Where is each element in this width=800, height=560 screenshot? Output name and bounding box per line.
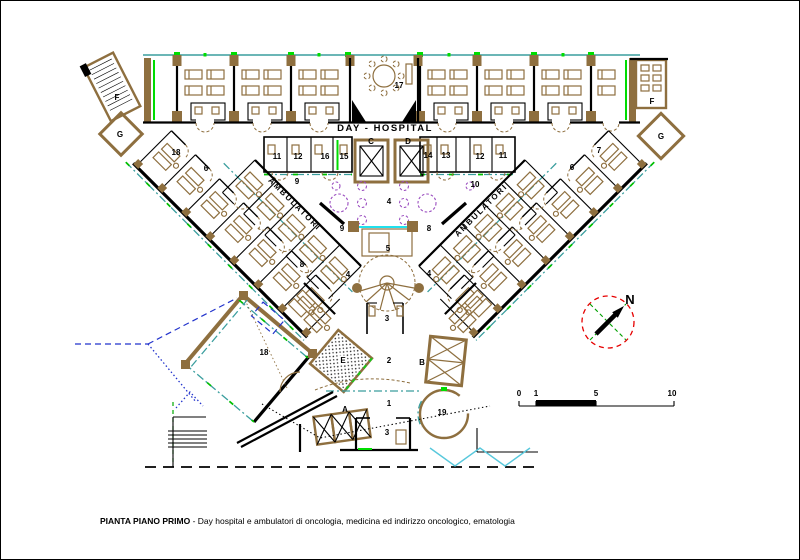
room-label-18-square: 18 <box>260 348 269 357</box>
room-label-14: 14 <box>424 151 433 160</box>
scale-bar-block <box>536 400 596 406</box>
room-label-4-lower-right: 4 <box>427 269 432 278</box>
room-label-e: E <box>340 356 346 365</box>
room-label-7: 7 <box>597 146 602 155</box>
floor-plan-page: N 0 1 5 10 DAY - HOSPITAL AMBULATORI AMB… <box>0 0 800 560</box>
drawing-title-rest: - Day hospital e ambulatori di oncologia… <box>190 516 515 526</box>
room-label-f-right: F <box>650 97 655 106</box>
room-label-g-right: G <box>658 132 664 141</box>
scale-tick-0: 0 <box>517 389 522 398</box>
elevator-c <box>355 140 388 182</box>
room-label-16: 16 <box>321 152 330 161</box>
room-label-4-atrium: 4 <box>387 197 392 206</box>
room-label-3-upper: 3 <box>385 314 390 323</box>
room-label-10: 10 <box>471 180 480 189</box>
day-hospital-label: DAY - HOSPITAL <box>337 123 433 134</box>
room-label-17: 17 <box>395 81 404 90</box>
left-end-wall <box>144 58 151 122</box>
north-label: N <box>625 292 634 307</box>
room-label-3-lower: 3 <box>385 428 390 437</box>
room-label-a: A <box>342 405 348 414</box>
room-label-b: B <box>419 358 425 367</box>
room-label-6-left: 6 <box>204 164 209 173</box>
room-label-5: 5 <box>386 244 391 253</box>
room-label-d: D <box>405 137 411 146</box>
scale-tick-10: 10 <box>668 389 677 398</box>
room-label-11-left: 11 <box>273 152 282 161</box>
room-label-18-strip: 18 <box>172 148 181 157</box>
elevator-d <box>395 140 428 182</box>
room-label-15: 15 <box>340 152 349 161</box>
scale-tick-5: 5 <box>594 389 599 398</box>
drawing-title-bold: PIANTA PIANO PRIMO <box>100 516 191 526</box>
room-label-f-left: F <box>115 93 120 102</box>
room-label-12-left: 12 <box>294 152 303 161</box>
room-label-c: C <box>368 137 374 146</box>
room-label-8-lower: 8 <box>300 260 305 269</box>
room-label-9-atrium: 9 <box>340 224 345 233</box>
room-label-6-right: 6 <box>570 163 575 172</box>
room-label-11-right: 11 <box>499 151 508 160</box>
room-label-9-corridor: 9 <box>295 177 300 186</box>
room-label-8-atrium: 8 <box>427 224 432 233</box>
scale-tick-1: 1 <box>534 389 539 398</box>
room-label-12-right: 12 <box>476 152 485 161</box>
drawing-title: PIANTA PIANO PRIMO - Day hospital e ambu… <box>100 516 515 526</box>
room-label-13: 13 <box>442 151 451 160</box>
room-label-2: 2 <box>387 356 392 365</box>
room-label-4-lower-left: 4 <box>346 270 351 279</box>
room-label-g-left: G <box>117 130 123 139</box>
plan-canvas: N 0 1 5 10 DAY - HOSPITAL AMBULATORI AMB… <box>0 0 800 560</box>
room-label-19: 19 <box>438 408 447 417</box>
room-label-1: 1 <box>387 399 392 408</box>
